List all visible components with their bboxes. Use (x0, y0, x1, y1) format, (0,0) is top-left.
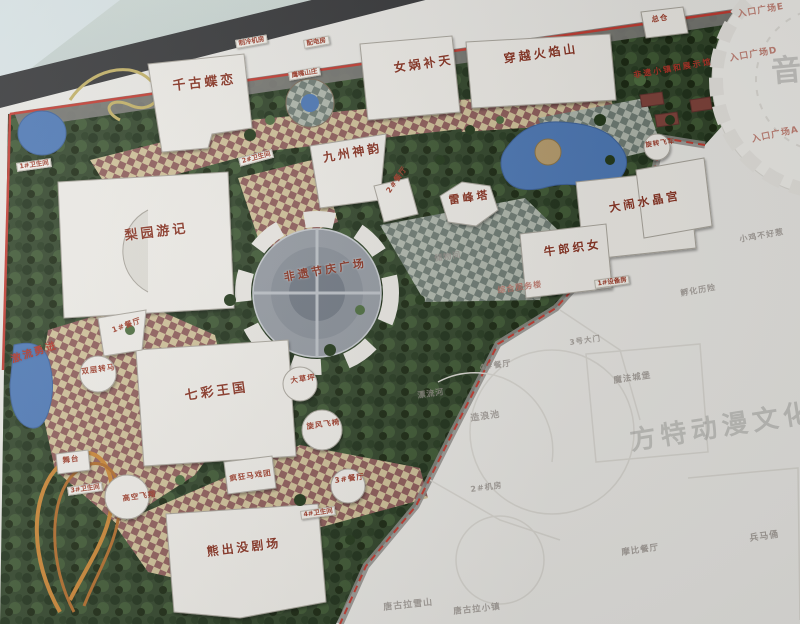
map-label-jifang-2: 2#机房 (470, 482, 503, 495)
map-label-shebeifang-1: 1#设备房 (594, 275, 630, 289)
map-label-shuangceng-zhuanma: 双层转马 (81, 363, 116, 376)
map-label-niulang-zhinv: 牛郎织女 (543, 238, 602, 259)
map-label-canting-3: 3#餐厅 (334, 473, 365, 485)
map-label-mobi-canting: 摩比餐厅 (621, 544, 660, 559)
map-label-watermark-fangte-donman-wenhua-keji: 方特动漫文化科技 (628, 389, 800, 456)
map-label-weishengjian-2: 2#卫生间 (238, 149, 275, 167)
map-label-zhileng-jifang: 制冷机房 (235, 34, 268, 49)
map-label-wutai: 舞台 (62, 455, 80, 466)
map-label-canting-2: 2#餐厅 (385, 165, 409, 195)
map-label-feiyi-jieqing-guangchang: 非遗节庆广场 (283, 257, 368, 283)
map-label-jiliu-yongjin: 激流勇进 (10, 340, 59, 365)
map-label-zongcang: 总仓 (651, 14, 669, 25)
map-label-qiangu-dielian: 千古蝶恋 (172, 73, 237, 94)
map-label-xiaoji-buhaore: 小鸡不好惹 (739, 228, 785, 244)
map-label-xuanfeng-feiyi: 旋风飞椅 (306, 418, 341, 431)
map-label-tanggula-xiaozhen: 唐古拉小镇 (453, 603, 501, 617)
map-label-zonghe-fuwulou: 综合服务楼 (497, 281, 543, 296)
map-label-feiyi-xiaozhen-zhanshiguan: 非遗小镇和展示馆 (633, 58, 713, 81)
map-label-fuhua-lixian: 孵化历险 (680, 284, 717, 299)
map-label-chuanyue-huoyanshan: 穿越火焰山 (503, 43, 579, 66)
map-label-leifengta: 雷峰塔 (448, 189, 491, 207)
map-label-rukou-guangchang-e: 入口广场E (737, 3, 785, 21)
map-label-dacaoping: 大草坪 (290, 373, 316, 385)
map-label-yingzui-shanzhuang: 鹰嘴山庄 (288, 66, 321, 81)
map-label-danao-shuijinggong: 大闹水晶宫 (608, 189, 682, 214)
map-label-gaokong-feixiang: 高空飞翔 (122, 490, 157, 503)
map-label-watermark-yin: 音 (770, 53, 800, 89)
map-labels-layer: 千古蝶恋女娲补天穿越火焰山九州神韵雷峰塔大闹水晶宫牛郎织女梨园游记非遗节庆广场七… (0, 0, 800, 624)
map-label-xuanzhuan-feiche: 旋转飞车 (645, 138, 676, 149)
map-label-nuwa-butian: 女娲补天 (393, 54, 454, 75)
map-label-weishengjian-1: 1#卫生间 (16, 158, 52, 172)
map-label-weishengjian-4: 4#卫生间 (300, 506, 336, 520)
map-label-weishengjian-3: 3#卫生间 (67, 482, 103, 496)
map-label-qicai-wangguo: 七彩王国 (184, 381, 249, 404)
map-label-piaoliuhe: 漂流河 (417, 388, 445, 400)
map-label-bingmayong: 兵马俑 (749, 531, 780, 545)
map-label-peidianfang: 配电房 (303, 36, 330, 49)
map-label-chuwujian: 储物间 (434, 251, 462, 263)
map-label-liyuan-youji: 梨园游记 (124, 222, 189, 244)
map-label-canting-4: 4#餐厅 (479, 360, 512, 373)
park-map-photo: 千古蝶恋女娲补天穿越火焰山九州神韵雷峰塔大闹水晶宫牛郎织女梨园游记非遗节庆广场七… (0, 0, 800, 624)
map-label-mofa-chengbao: 魔法城堡 (613, 372, 652, 387)
map-label-tanggula-xueshan: 唐古拉雪山 (383, 599, 434, 614)
map-label-canting-1: 1#餐厅 (111, 317, 142, 335)
map-label-damen-3: 3号大门 (569, 335, 602, 348)
map-label-rukou-guangchang-a: 入口广场A (751, 126, 800, 146)
map-label-zaolangchi: 造浪池 (470, 411, 501, 425)
map-label-fengkuang-maxituan: 疯狂马戏团 (229, 469, 272, 483)
map-label-jiuzhou-shenyun: 九州神韵 (322, 142, 383, 165)
map-label-xiongchumo-juchang: 熊出没剧场 (206, 537, 282, 559)
